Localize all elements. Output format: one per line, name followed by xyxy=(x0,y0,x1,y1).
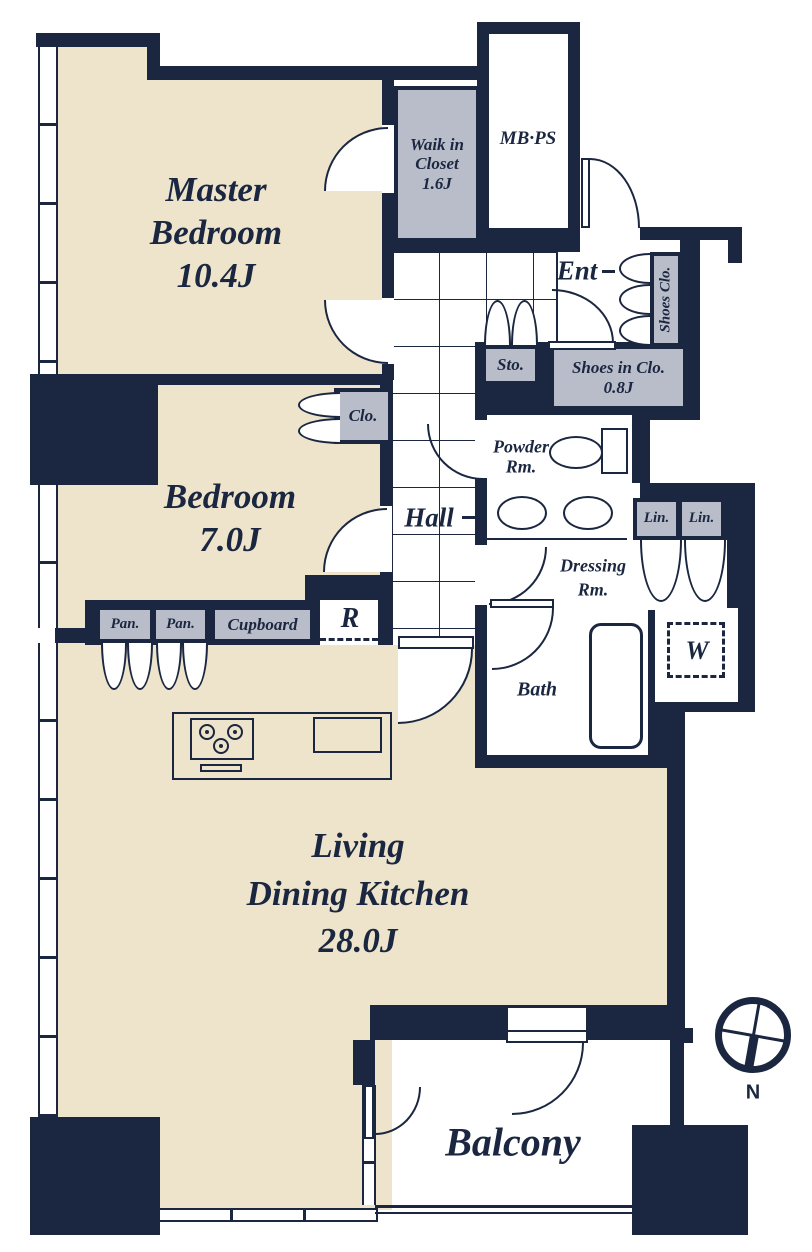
compass-needle xyxy=(744,1034,759,1069)
bedroom-closet-label: Clo. xyxy=(349,406,378,426)
cupboard: Cupboard xyxy=(211,606,314,643)
wall xyxy=(378,575,392,645)
linen-closet-1: Lin. xyxy=(633,498,680,540)
wall xyxy=(55,628,100,643)
compass-icon xyxy=(715,997,791,1073)
door-leaf xyxy=(490,599,554,608)
master-bedroom-floor xyxy=(58,47,147,374)
door-leaf xyxy=(398,636,474,649)
hall-label: Hall xyxy=(404,503,454,534)
wall xyxy=(477,22,580,34)
bedroom-label: Bedroom xyxy=(164,477,296,517)
hall-leader-dash xyxy=(462,516,478,519)
toilet-bowl xyxy=(549,436,603,469)
master-bedroom-size: 10.4J xyxy=(177,256,256,296)
wall xyxy=(680,240,700,347)
structural-column xyxy=(30,1117,160,1235)
wall xyxy=(58,374,392,385)
stove-burner-dot xyxy=(205,730,209,734)
door-arc xyxy=(512,1043,584,1115)
vanity-sink xyxy=(497,496,547,530)
floor-plan: Waik in Closet 1.6J Shoes Clo. Sto. Shoe… xyxy=(0,0,812,1252)
shoes-in-closet: Shoes in Clo. 0.8J xyxy=(550,345,687,410)
door-arc xyxy=(375,1087,421,1135)
bathtub xyxy=(589,623,643,749)
stove-grill xyxy=(200,764,242,772)
wall xyxy=(728,240,742,263)
dressing-room-label: Rm. xyxy=(578,580,609,601)
ldk-label: Dining Kitchen xyxy=(247,874,470,914)
wall xyxy=(667,760,685,1040)
walk-in-closet-label: Waik in xyxy=(410,135,464,155)
bedroom-closet: Clo. xyxy=(334,388,392,444)
wall xyxy=(36,33,160,47)
door-leaf xyxy=(364,1085,374,1139)
walk-in-closet-size: 1.6J xyxy=(422,174,452,194)
compass-north-label: N xyxy=(746,1082,760,1105)
pantry-1: Pan. xyxy=(96,606,154,643)
ldk-floor xyxy=(475,768,667,1005)
balcony-label: Balcony xyxy=(445,1119,581,1166)
pantry-2-label: Pan. xyxy=(166,616,195,633)
storage-box: Sto. xyxy=(482,345,539,385)
bath-label: Bath xyxy=(517,679,557,702)
wall xyxy=(353,1040,375,1085)
linen-2-label: Lin. xyxy=(689,510,714,527)
cupboard-label: Cupboard xyxy=(228,615,298,635)
door-opening xyxy=(475,545,487,605)
dressing-room-label: Dressing xyxy=(560,556,626,577)
shoes-closet-tall: Shoes Clo. xyxy=(650,252,682,347)
master-bedroom-label: Master xyxy=(165,170,266,210)
master-bedroom-label: Bedroom xyxy=(150,213,282,253)
stove-burner-dot xyxy=(219,744,223,748)
walk-in-closet-label: Closet xyxy=(415,154,458,174)
storage-label: Sto. xyxy=(497,355,524,375)
balcony-rail xyxy=(375,1205,637,1208)
shoes-in-closet-label: Shoes in Clo. xyxy=(572,358,665,378)
entrance-label: Ent xyxy=(557,256,598,287)
window xyxy=(38,47,58,374)
structural-column xyxy=(30,374,158,485)
walk-in-closet: Waik in Closet 1.6J xyxy=(394,86,480,242)
wall xyxy=(477,228,580,252)
powder-room-label: Rm. xyxy=(506,457,537,478)
mb-ps-label: MB·PS xyxy=(500,128,557,150)
balcony-door-leaf xyxy=(506,1030,588,1043)
vanity-sink xyxy=(563,496,613,530)
wall xyxy=(147,66,492,80)
linen-1-label: Lin. xyxy=(644,510,669,527)
shoes-closet-tall-label: Shoes Clo. xyxy=(657,267,674,333)
ldk-label: Living xyxy=(311,826,404,866)
entrance-door-arc xyxy=(590,158,640,228)
window xyxy=(160,1208,378,1222)
entrance-leader-dash xyxy=(602,270,615,273)
window xyxy=(38,485,58,628)
window xyxy=(38,643,58,1117)
toilet-tank xyxy=(601,428,628,474)
ldk-size: 28.0J xyxy=(319,921,398,961)
wall xyxy=(640,227,742,240)
kitchen-sink xyxy=(313,717,382,753)
wall xyxy=(382,242,492,252)
balcony-rail xyxy=(375,1212,637,1214)
slider-dash-line xyxy=(508,1005,586,1008)
shoes-in-closet-size: 0.8J xyxy=(604,378,634,398)
pantry-2: Pan. xyxy=(152,606,209,643)
linen-closet-2: Lin. xyxy=(678,498,725,540)
fridge-label: R xyxy=(341,603,360,635)
entrance-door-leaf xyxy=(581,158,590,228)
fridge-dash-line xyxy=(320,638,378,641)
powder-room-label: Powder xyxy=(493,437,549,458)
structural-column xyxy=(632,1125,748,1235)
stove-burner-dot xyxy=(233,730,237,734)
wall xyxy=(568,22,580,240)
washer-label: W xyxy=(685,636,708,666)
pantry-1-label: Pan. xyxy=(111,616,140,633)
bedroom-size: 7.0J xyxy=(199,520,260,560)
vanity-counter-line xyxy=(487,538,627,540)
wall xyxy=(670,1040,684,1130)
